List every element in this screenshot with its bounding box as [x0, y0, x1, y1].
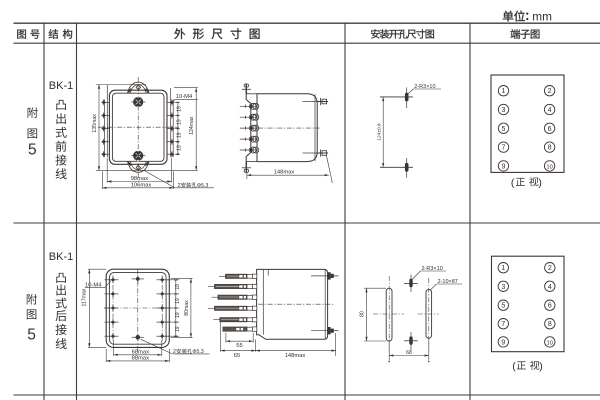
svg-text:7: 7	[502, 145, 506, 152]
svg-text:5: 5	[502, 126, 506, 133]
svg-text:68max: 68max	[132, 349, 150, 355]
svg-text:19: 19	[176, 106, 182, 112]
svg-text:55: 55	[236, 343, 242, 349]
svg-text:88max: 88max	[132, 356, 150, 362]
svg-text:2: 2	[548, 88, 552, 95]
svg-text:19: 19	[175, 298, 181, 304]
svg-text:2: 2	[548, 265, 552, 272]
svg-text:(: (	[512, 360, 516, 372]
svg-text:10: 10	[546, 164, 552, 170]
svg-text:19: 19	[175, 326, 181, 332]
svg-text:5: 5	[28, 142, 37, 159]
svg-text:5: 5	[501, 303, 505, 310]
svg-text:5: 5	[27, 326, 36, 343]
svg-text:3: 3	[501, 284, 505, 291]
svg-text:135max: 135max	[92, 114, 98, 133]
svg-text:19: 19	[175, 312, 181, 318]
svg-text:106max: 106max	[131, 183, 152, 189]
svg-text:2: 2	[173, 349, 176, 355]
svg-text:9: 9	[501, 339, 505, 346]
svg-text:124max: 124max	[189, 116, 195, 135]
svg-text:Φ5.3: Φ5.3	[197, 183, 208, 189]
svg-text:8: 8	[548, 145, 552, 152]
svg-text:): )	[539, 360, 543, 372]
svg-text:4: 4	[548, 284, 552, 291]
svg-text:80max: 80max	[184, 300, 190, 316]
svg-text:6: 6	[548, 126, 552, 133]
svg-text:Φ5.3: Φ5.3	[192, 349, 203, 355]
svg-text:8: 8	[548, 321, 552, 328]
svg-text:148max: 148max	[274, 169, 295, 175]
svg-text:68: 68	[406, 350, 412, 356]
svg-text:98max: 98max	[131, 176, 149, 182]
svg-text:148max: 148max	[285, 353, 306, 359]
svg-text:9: 9	[502, 163, 506, 170]
svg-text:65: 65	[234, 353, 240, 359]
svg-text:19: 19	[176, 132, 182, 138]
svg-text:7: 7	[501, 321, 505, 328]
svg-text:BK-1: BK-1	[49, 80, 73, 92]
svg-text:2: 2	[178, 183, 181, 189]
svg-text:80: 80	[360, 311, 366, 317]
svg-text:124±0.8: 124±0.8	[376, 123, 382, 141]
svg-text:6: 6	[548, 303, 552, 310]
svg-text:10: 10	[547, 340, 553, 346]
svg-text:19: 19	[176, 119, 182, 125]
svg-text:1: 1	[502, 88, 506, 95]
svg-text:(: (	[511, 177, 515, 189]
svg-text:BK-1: BK-1	[49, 251, 73, 263]
svg-text:): )	[538, 177, 542, 189]
svg-text:19: 19	[176, 145, 182, 151]
svg-text:3: 3	[502, 107, 506, 114]
svg-text:4: 4	[548, 107, 552, 114]
svg-text:1: 1	[501, 265, 505, 272]
svg-text:117max: 117max	[82, 288, 88, 306]
svg-text:19: 19	[175, 284, 181, 290]
svg-text:mm: mm	[532, 10, 552, 24]
